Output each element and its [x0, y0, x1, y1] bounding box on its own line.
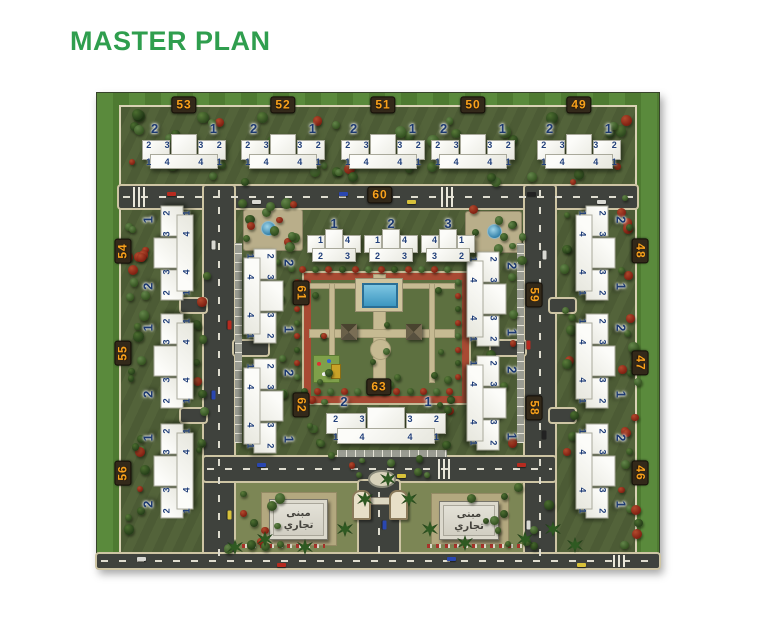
tree-icon	[247, 540, 256, 549]
building-footprint: 23321441	[241, 134, 325, 172]
block-48-cluster-0: 2123321441	[571, 206, 627, 301]
tree-icon	[500, 510, 508, 518]
block-55-cluster-0: 2123321441	[141, 314, 197, 409]
crosswalk	[438, 459, 450, 479]
tree-icon	[495, 216, 504, 225]
unit-number: 1	[345, 157, 350, 167]
block-badge-63: 63	[366, 378, 391, 395]
building-footprint: 23321441	[153, 424, 197, 519]
unit-number: 4	[345, 235, 350, 245]
car-icon	[137, 557, 146, 561]
unit-number: 2	[217, 140, 222, 150]
unit-number: 3	[597, 269, 607, 274]
parking-strip	[337, 450, 447, 457]
car-icon	[527, 521, 531, 530]
unit-number: 2	[459, 251, 464, 261]
unit-number: 2	[316, 140, 321, 150]
building-wing	[176, 322, 194, 400]
unit-number: 3	[198, 140, 203, 150]
unit-number: 4	[468, 419, 478, 424]
unit-number: 4	[181, 449, 191, 454]
tree-icon	[562, 307, 569, 314]
block-46-cluster-0: 2123321441	[571, 424, 627, 519]
unit-number: 4	[181, 269, 191, 274]
tree-icon	[198, 390, 206, 398]
unit-number: 2	[488, 361, 498, 366]
building-wing	[466, 364, 484, 442]
unit-number: 3	[597, 449, 607, 454]
unit-number: 4	[364, 157, 369, 167]
unit-number: 3	[487, 140, 492, 150]
building-wing	[466, 260, 484, 338]
unit-number: 1	[468, 361, 478, 366]
tree-icon	[622, 195, 628, 201]
building-footprint: 4132	[421, 229, 475, 265]
unit-number: 4	[577, 487, 587, 492]
building-footprint: 1423	[307, 229, 361, 265]
unit-number: 4	[577, 339, 587, 344]
unit-number: 3	[161, 269, 171, 274]
tree-icon	[387, 459, 395, 467]
unit-number: 2	[265, 364, 275, 369]
tree-icon	[447, 396, 454, 403]
car-icon	[228, 511, 232, 520]
building-wing	[176, 432, 194, 510]
building-wing	[349, 154, 418, 169]
unit-number: 2	[597, 429, 607, 434]
block-badge-62: 62	[292, 392, 309, 417]
unit-number: 3	[161, 377, 171, 382]
tree-icon	[418, 266, 425, 273]
unit-number: 1	[468, 336, 478, 341]
unit-number: 2	[375, 251, 380, 261]
block-49-cluster-0: 2123321441	[537, 122, 621, 172]
tree-icon	[197, 297, 206, 306]
unit-number: 3	[297, 140, 302, 150]
unit-number: 4	[181, 377, 191, 382]
unit-number: 1	[181, 398, 191, 403]
unit-number: 2	[612, 140, 617, 150]
unit-number: 1	[577, 290, 587, 295]
tree-icon	[241, 178, 248, 185]
unit-number: 4	[181, 487, 191, 492]
building-footprint: 23321441	[571, 424, 615, 519]
building-footprint: 23321441	[462, 356, 506, 451]
tree-icon	[359, 458, 365, 464]
unit-number: 2	[597, 290, 607, 295]
tree-icon	[631, 414, 639, 422]
block-59-cluster-0: 2123321441	[462, 252, 518, 347]
car-icon	[339, 192, 348, 196]
unit-number: 3	[454, 140, 459, 150]
unit-number: 2	[597, 211, 607, 216]
page: MASTER PLAN	[0, 0, 768, 618]
block-badge-59: 59	[525, 282, 542, 307]
unit-number: 2	[488, 257, 498, 262]
tree-icon	[563, 448, 570, 455]
unit-number: 2	[435, 140, 440, 150]
unit-number: 1	[181, 211, 191, 216]
tree-icon	[455, 347, 461, 353]
tree-icon	[631, 505, 641, 515]
building-footprint: 23321441	[571, 314, 615, 409]
unit-number: 2	[161, 508, 171, 513]
block-62-cluster-0: 2123321441	[239, 359, 295, 454]
tree-icon	[199, 335, 208, 344]
tree-icon	[198, 439, 205, 446]
building-footprint: 23321441	[142, 134, 226, 172]
unit-number: 4	[198, 157, 203, 167]
unit-number: 4	[577, 449, 587, 454]
tree-icon	[527, 172, 537, 182]
unit-number: 1	[181, 319, 191, 324]
tree-icon	[455, 320, 461, 326]
unit-number: 2	[161, 319, 171, 324]
tree-icon	[276, 217, 282, 223]
unit-number: 1	[245, 443, 255, 448]
unit-number: 3	[488, 315, 498, 320]
commercial-label-line1: مبنى	[457, 509, 481, 521]
unit-number: 3	[597, 377, 607, 382]
block-badge-48: 48	[631, 238, 648, 263]
tree-icon	[634, 519, 643, 528]
tree-icon	[349, 462, 356, 469]
tree-icon	[508, 222, 516, 230]
commercial-label-line2: تجاري	[284, 520, 314, 532]
tree-icon	[209, 172, 217, 180]
unit-number: 3	[345, 251, 350, 261]
unit-number: 2	[318, 251, 323, 261]
unit-number: 4	[593, 157, 598, 167]
unit-number: 2	[161, 398, 171, 403]
unit-number: 3	[407, 414, 412, 424]
unit-number: 4	[402, 235, 407, 245]
building-footprint: 1423	[364, 229, 418, 265]
tree-icon	[275, 493, 285, 503]
tree-icon	[424, 472, 430, 478]
building-footprint: 23321441	[571, 206, 615, 301]
tree-icon	[455, 360, 461, 366]
tree-icon	[129, 159, 135, 165]
block-badge-51: 51	[370, 96, 395, 113]
unit-number: 3	[402, 251, 407, 261]
tree-icon	[500, 233, 508, 241]
block-badge-49: 49	[566, 96, 591, 113]
tree-icon	[455, 279, 461, 285]
unit-number: 3	[488, 277, 498, 282]
tree-icon	[416, 455, 423, 462]
unit-number: 2	[541, 140, 546, 150]
block-badge-47: 47	[631, 350, 648, 375]
tree-icon	[431, 372, 438, 379]
road-marking	[539, 190, 541, 556]
tree-icon	[394, 374, 401, 381]
car-icon	[407, 200, 416, 204]
commercial-label-line1: مبنى	[286, 508, 310, 520]
unit-number: 4	[432, 235, 437, 245]
unit-number: 3	[560, 140, 565, 150]
building-footprint: 23321441	[153, 314, 197, 409]
unit-number: 3	[488, 419, 498, 424]
gate-kiosk-icon	[352, 490, 371, 520]
unit-number: 3	[488, 381, 498, 386]
tree-icon	[490, 516, 499, 525]
unit-number: 4	[468, 277, 478, 282]
tree-icon	[407, 388, 414, 395]
block-60-cluster-0: 11423	[307, 217, 361, 265]
unit-number: 1	[181, 290, 191, 295]
unit-number: 4	[359, 432, 364, 442]
tree-icon	[277, 541, 284, 548]
block-47-cluster-0: 2123321441	[571, 314, 627, 409]
unit-number: 4	[454, 157, 459, 167]
tree-icon	[438, 349, 444, 355]
unit-number: 4	[181, 339, 191, 344]
block-badge-46: 46	[631, 460, 648, 485]
unit-number: 2	[488, 440, 498, 445]
unit-number: 1	[459, 235, 464, 245]
tree-icon	[299, 266, 306, 273]
tree-icon	[514, 483, 522, 491]
unit-number: 1	[435, 157, 440, 167]
tree-icon	[455, 374, 461, 380]
unit-number: 3	[597, 339, 607, 344]
road-marking	[378, 485, 380, 553]
car-icon	[543, 251, 547, 260]
car-icon	[543, 431, 547, 440]
unit-number: 1	[245, 254, 255, 259]
block-51-cluster-0: 2123321441	[341, 122, 425, 172]
tree-icon	[130, 278, 138, 286]
tree-icon	[128, 368, 135, 375]
block-badge-55: 55	[114, 340, 131, 365]
unit-number: 3	[265, 274, 275, 279]
unit-number: 4	[245, 422, 255, 427]
tree-icon	[354, 388, 361, 395]
block-53-cluster-0: 2123321441	[142, 122, 226, 172]
gazebo-icon	[406, 324, 422, 340]
garden-path	[429, 283, 435, 383]
unit-number: 1	[577, 398, 587, 403]
unit-number: 4	[487, 157, 492, 167]
unit-number: 1	[434, 432, 439, 442]
car-icon	[383, 521, 387, 530]
block-56-cluster-0: 2123321441	[141, 424, 197, 519]
unit-number: 1	[217, 157, 222, 167]
tree-icon	[132, 443, 139, 450]
building-wing	[150, 154, 219, 169]
unit-number: 3	[397, 140, 402, 150]
unit-number: 1	[577, 319, 587, 324]
unit-number: 2	[597, 398, 607, 403]
unit-number: 3	[597, 487, 607, 492]
unit-number: 3	[165, 140, 170, 150]
block-50-cluster-0: 2123321441	[431, 122, 515, 172]
unit-number: 3	[161, 231, 171, 236]
tree-icon	[200, 407, 209, 416]
unit-number: 2	[161, 290, 171, 295]
tree-icon	[634, 378, 642, 386]
car-icon	[212, 241, 216, 250]
tree-icon	[250, 519, 258, 527]
unit-number: 4	[397, 157, 402, 167]
block-60-cluster-2: 34132	[421, 217, 475, 265]
unit-number: 3	[364, 140, 369, 150]
crosswalk	[133, 187, 145, 207]
roundabout	[368, 470, 396, 488]
unit-number: 3	[265, 312, 275, 317]
car-icon	[577, 563, 586, 567]
car-icon	[252, 200, 261, 204]
building-footprint: 23321441	[153, 206, 197, 301]
building-footprint: 23321441	[462, 252, 506, 347]
unit-number: 3	[264, 140, 269, 150]
gate-kiosk-icon	[389, 490, 408, 520]
unit-number: 3	[161, 487, 171, 492]
unit-number: 1	[506, 157, 511, 167]
block-61-cluster-0: 2123321441	[239, 249, 295, 344]
unit-number: 2	[434, 414, 439, 424]
unit-number: 1	[318, 235, 323, 245]
unit-number: 4	[245, 312, 255, 317]
block-badge-58: 58	[525, 395, 542, 420]
unit-number: 3	[265, 384, 275, 389]
tree-icon	[247, 222, 255, 230]
unit-number: 4	[468, 315, 478, 320]
tree-icon	[467, 494, 476, 503]
unit-number: 2	[597, 508, 607, 513]
car-icon	[397, 474, 406, 478]
block-badge-54: 54	[114, 238, 131, 263]
tree-icon	[455, 293, 461, 299]
unit-number: 1	[375, 235, 380, 245]
building-wing	[243, 257, 261, 335]
car-icon	[277, 563, 286, 567]
unit-number: 3	[161, 449, 171, 454]
building-wing	[545, 154, 614, 169]
unit-number: 2	[161, 429, 171, 434]
tree-icon	[383, 348, 390, 355]
tree-icon	[294, 347, 300, 353]
unit-number: 4	[407, 432, 412, 442]
tree-icon	[307, 423, 313, 429]
car-icon	[447, 557, 456, 561]
car-icon	[228, 321, 232, 330]
unit-number: 1	[245, 333, 255, 338]
road-marking	[218, 190, 220, 556]
tree-icon	[365, 266, 372, 273]
unit-number: 2	[333, 414, 338, 424]
building-footprint: 23321441	[537, 134, 621, 172]
block-63-cluster-0: 2123321441	[326, 395, 446, 447]
tree-icon	[444, 376, 452, 384]
unit-number: 4	[468, 381, 478, 386]
unit-number: 1	[181, 508, 191, 513]
tree-icon	[238, 199, 247, 208]
tree-icon	[129, 226, 136, 233]
tree-icon	[266, 202, 275, 211]
tree-icon	[570, 411, 579, 420]
unit-number: 1	[245, 157, 250, 167]
master-plan-map: مبنى تجاري مبنى تجاري 212332144146212332…	[96, 92, 660, 569]
page-title: MASTER PLAN	[70, 26, 271, 57]
unit-number: 3	[161, 339, 171, 344]
car-icon	[517, 463, 526, 467]
tree-icon	[431, 266, 438, 273]
building-wing	[439, 154, 508, 169]
block-badge-50: 50	[460, 96, 485, 113]
block-badge-61: 61	[292, 280, 309, 305]
block-58-cluster-0: 2123321441	[462, 356, 518, 451]
unit-number: 2	[345, 140, 350, 150]
building-footprint: 23321441	[239, 249, 283, 344]
gazebo-icon	[341, 324, 357, 340]
car-icon	[167, 192, 176, 196]
unit-number: 2	[245, 140, 250, 150]
tree-icon	[405, 266, 412, 273]
unit-number: 2	[416, 140, 421, 150]
unit-number: 4	[264, 157, 269, 167]
building-footprint: 23321441	[239, 359, 283, 454]
tree-icon	[620, 541, 629, 550]
tree-icon	[317, 440, 325, 448]
tree-icon	[270, 226, 280, 236]
unit-number: 3	[432, 251, 437, 261]
car-icon	[597, 200, 606, 204]
building-wing	[337, 428, 435, 444]
unit-number: 1	[316, 157, 321, 167]
tree-icon	[240, 510, 247, 517]
tree-icon	[509, 243, 516, 250]
block-badge-60: 60	[367, 186, 392, 203]
tree-icon	[321, 333, 327, 339]
car-icon	[212, 391, 216, 400]
unit-number: 3	[597, 231, 607, 236]
building-wing	[243, 367, 261, 445]
crosswalk	[441, 187, 453, 207]
unit-number: 4	[577, 377, 587, 382]
unit-number: 1	[577, 211, 587, 216]
block-badge-56: 56	[114, 460, 131, 485]
unit-number: 1	[612, 157, 617, 167]
unit-number: 1	[577, 429, 587, 434]
car-icon	[527, 341, 531, 350]
tree-icon	[562, 359, 572, 369]
building-footprint: 23321441	[326, 407, 446, 447]
block-badge-53: 53	[171, 96, 196, 113]
unit-number: 1	[181, 429, 191, 434]
unit-number: 4	[245, 384, 255, 389]
road-marking	[101, 560, 655, 562]
block-52-cluster-0: 2123321441	[241, 122, 325, 172]
commercial-building-left: مبنى تجاري	[269, 499, 328, 540]
unit-number: 2	[506, 140, 511, 150]
car-icon	[257, 463, 266, 467]
building-wing	[249, 154, 318, 169]
building-wing	[176, 214, 194, 292]
building-footprint: 23321441	[341, 134, 425, 172]
unit-number: 3	[593, 140, 598, 150]
unit-number: 2	[161, 211, 171, 216]
tree-icon	[560, 264, 570, 274]
tree-icon	[240, 491, 246, 497]
building-footprint: 23321441	[431, 134, 515, 172]
tree-icon	[339, 266, 346, 273]
tree-icon	[352, 266, 359, 273]
unit-number: 3	[265, 422, 275, 427]
unit-number: 1	[245, 364, 255, 369]
unit-number: 2	[265, 333, 275, 338]
